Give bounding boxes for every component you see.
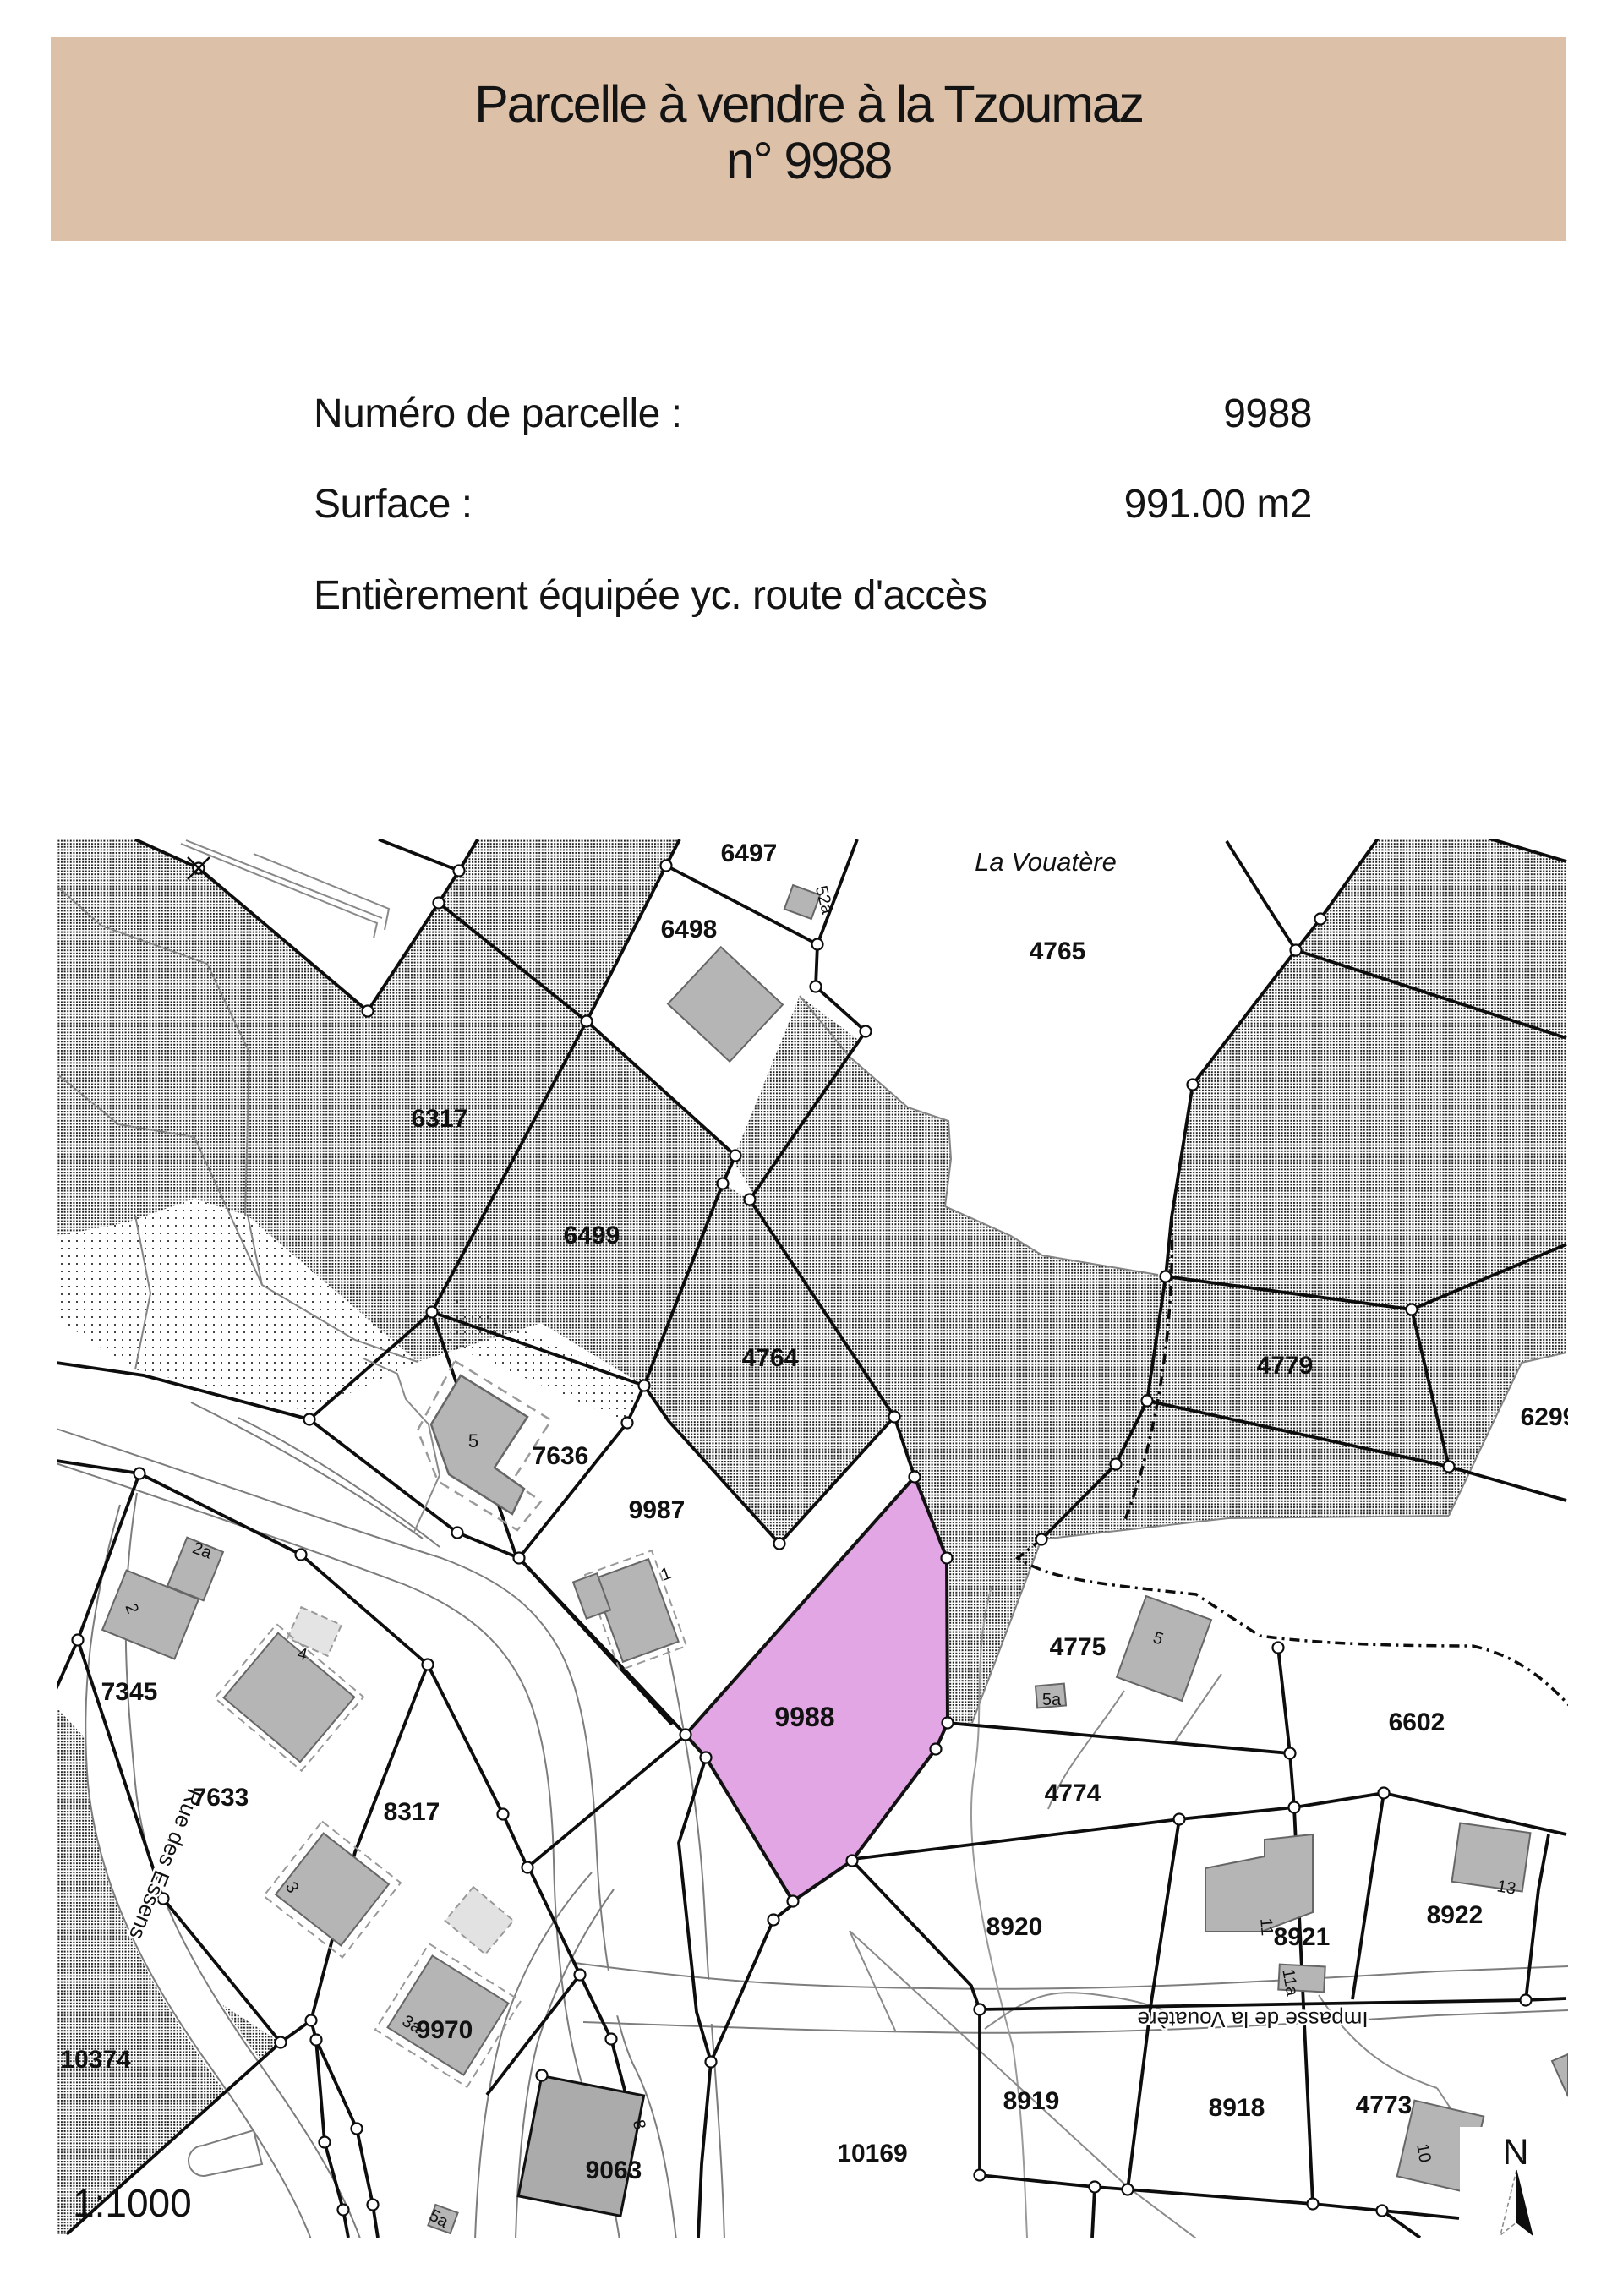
svg-text:10374: 10374	[60, 2046, 131, 2074]
svg-text:4775: 4775	[1050, 1633, 1107, 1661]
svg-text:4764: 4764	[742, 1344, 799, 1372]
svg-text:13: 13	[1495, 1877, 1517, 1899]
svg-text:1:1000: 1:1000	[73, 2181, 192, 2225]
svg-text:6602: 6602	[1389, 1708, 1445, 1736]
svg-text:5a: 5a	[1042, 1691, 1062, 1709]
svg-text:11: 11	[1256, 1917, 1276, 1937]
svg-text:4773: 4773	[1356, 2091, 1413, 2119]
svg-text:8920: 8920	[986, 1913, 1043, 1941]
svg-text:6498: 6498	[661, 916, 718, 943]
svg-text:6299: 6299	[1521, 1403, 1577, 1431]
svg-text:7633: 7633	[193, 1784, 249, 1812]
svg-text:8918: 8918	[1209, 2094, 1265, 2122]
svg-text:6499: 6499	[564, 1222, 620, 1249]
svg-text:4779: 4779	[1257, 1352, 1314, 1380]
svg-text:8919: 8919	[1003, 2087, 1060, 2115]
svg-text:N: N	[1502, 2132, 1528, 2173]
svg-text:10: 10	[1413, 2142, 1434, 2164]
svg-text:5: 5	[468, 1430, 478, 1451]
svg-text:9987: 9987	[629, 1496, 686, 1524]
svg-text:6317: 6317	[412, 1105, 468, 1133]
svg-text:10169: 10169	[837, 2140, 907, 2168]
svg-text:8922: 8922	[1427, 1901, 1484, 1929]
svg-text:La Vouatère: La Vouatère	[975, 847, 1117, 877]
svg-text:9063: 9063	[586, 2157, 642, 2184]
svg-text:7636: 7636	[533, 1442, 589, 1470]
svg-text:9970: 9970	[417, 2016, 473, 2044]
svg-text:8921: 8921	[1274, 1923, 1331, 1951]
svg-text:4765: 4765	[1030, 938, 1086, 965]
svg-text:7345: 7345	[101, 1678, 158, 1706]
svg-text:9988: 9988	[774, 1702, 834, 1732]
svg-text:4774: 4774	[1045, 1779, 1101, 1807]
svg-text:Impasse de la Vouatère: Impasse de la Vouatère	[1137, 2007, 1368, 2032]
svg-text:8317: 8317	[384, 1798, 440, 1826]
svg-text:6497: 6497	[721, 839, 778, 867]
